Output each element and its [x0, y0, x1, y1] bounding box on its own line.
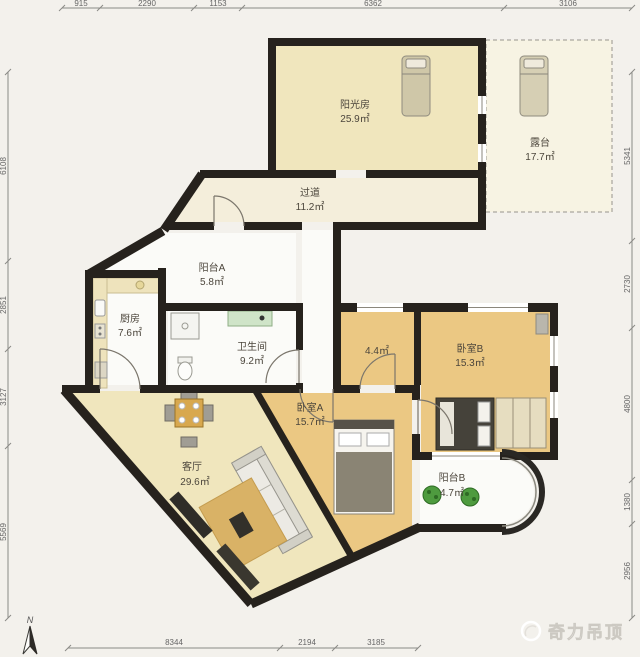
terrace-floor [486, 40, 612, 212]
corridor-floor [169, 178, 478, 222]
window-sunroom-1 [478, 96, 486, 114]
dim-bottom-1: 8344 [165, 638, 183, 647]
bedroom-a-area: 15.7㎡ [295, 416, 324, 428]
compass-needle-east [30, 626, 37, 654]
hallway-floor [302, 230, 333, 393]
dim-top-4: 6362 [364, 0, 382, 8]
terrace-label: 露台 [530, 136, 550, 149]
kitchen-area: 7.6㎡ [118, 327, 142, 339]
bathroom-label: 卫生间 [237, 340, 267, 353]
compass: N [23, 615, 37, 654]
dim-top-1: 915 [74, 0, 88, 8]
dim-left-1: 6108 [0, 157, 8, 175]
kitchen-sink [95, 300, 105, 316]
dim-right-5: 2956 [623, 562, 632, 580]
sunroom-area: 25.9㎡ [340, 113, 369, 125]
balcony-b-label: 阳台B [439, 471, 466, 484]
dim-bottom-3: 3185 [367, 638, 385, 647]
lounge-chair-terrace [520, 56, 548, 116]
compass-label: N [27, 615, 34, 625]
bedroom-b-area: 15.3㎡ [455, 357, 484, 369]
corridor-label: 过道 [300, 186, 320, 199]
kitchen-fridge [95, 362, 107, 378]
bathroom-vanity [228, 311, 272, 326]
dim-right-3: 4800 [623, 395, 632, 413]
bedroom-b-label: 卧室B [457, 342, 484, 355]
shower-tray [171, 313, 199, 339]
sunroom-label: 阳光房 [340, 98, 370, 111]
window-storage-room [357, 303, 403, 312]
dim-top-2: 2290 [138, 0, 156, 8]
terrace-area: 17.7㎡ [525, 151, 554, 163]
bed-b [436, 398, 494, 450]
toilet [178, 362, 192, 380]
dim-top-3: 1153 [209, 0, 227, 8]
window-bedroom-b-right-2 [550, 392, 558, 418]
kitchen-label: 厨房 [120, 312, 140, 325]
window-bedroom-b-right-1 [550, 336, 558, 366]
ac-unit [536, 314, 548, 334]
dim-left-2: 2851 [0, 296, 8, 314]
balcony-b-area: 4.7㎡ [440, 487, 464, 499]
dim-left-4: 5569 [0, 523, 8, 541]
lounge-chair-sunroom [402, 56, 430, 116]
dim-bottom-2: 2194 [298, 638, 316, 647]
kitchen-hob-icon [136, 281, 144, 289]
floor-plan-image: 阳光房 25.9㎡ 露台 17.7㎡ 过道 11.2㎡ 阳台A 5.8㎡ 厨房 … [0, 0, 640, 657]
floor-plan-svg: 阳光房 25.9㎡ 露台 17.7㎡ 过道 11.2㎡ 阳台A 5.8㎡ 厨房 … [0, 0, 640, 657]
bathroom-area: 9.2㎡ [240, 355, 264, 367]
bed-a [334, 420, 394, 514]
living-room-label: 客厅 [182, 460, 202, 473]
storage-room-area: 4.4㎡ [365, 345, 389, 357]
dim-right-1: 5341 [623, 147, 632, 165]
watermark: 奇力吊顶 [522, 622, 624, 642]
balcony-a-area: 5.8㎡ [200, 276, 224, 288]
bedroom-a-label: 卧室A [297, 401, 324, 414]
living-room-area: 29.6㎡ [180, 476, 209, 488]
wardrobe-b [496, 398, 546, 448]
window-balcony-b [432, 452, 500, 460]
dim-top-5: 3106 [559, 0, 577, 8]
dim-right-2: 2730 [623, 275, 632, 293]
dim-right-4: 1380 [623, 493, 632, 511]
dim-left-3: 3127 [0, 388, 8, 406]
plant-1 [423, 486, 441, 504]
corridor-area: 11.2㎡ [296, 201, 325, 213]
sunroom-floor [276, 46, 478, 170]
compass-needle-west [23, 626, 30, 654]
kitchen-stove [95, 324, 105, 338]
window-sunroom-2 [478, 144, 486, 162]
dining-table [175, 399, 203, 427]
balcony-a-label: 阳台A [199, 261, 226, 274]
watermark-text: 奇力吊顶 [548, 622, 624, 642]
window-bedroom-b-top [468, 303, 528, 312]
